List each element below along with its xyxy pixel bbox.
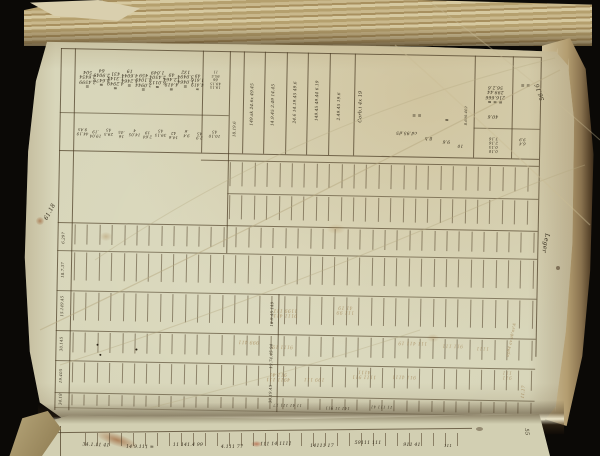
crease-lines: [0, 0, 600, 456]
photo-canvas: 1 ≡ 2.4599 2.6454 504≡ 8.6479 2.9049 64≡…: [0, 0, 600, 456]
